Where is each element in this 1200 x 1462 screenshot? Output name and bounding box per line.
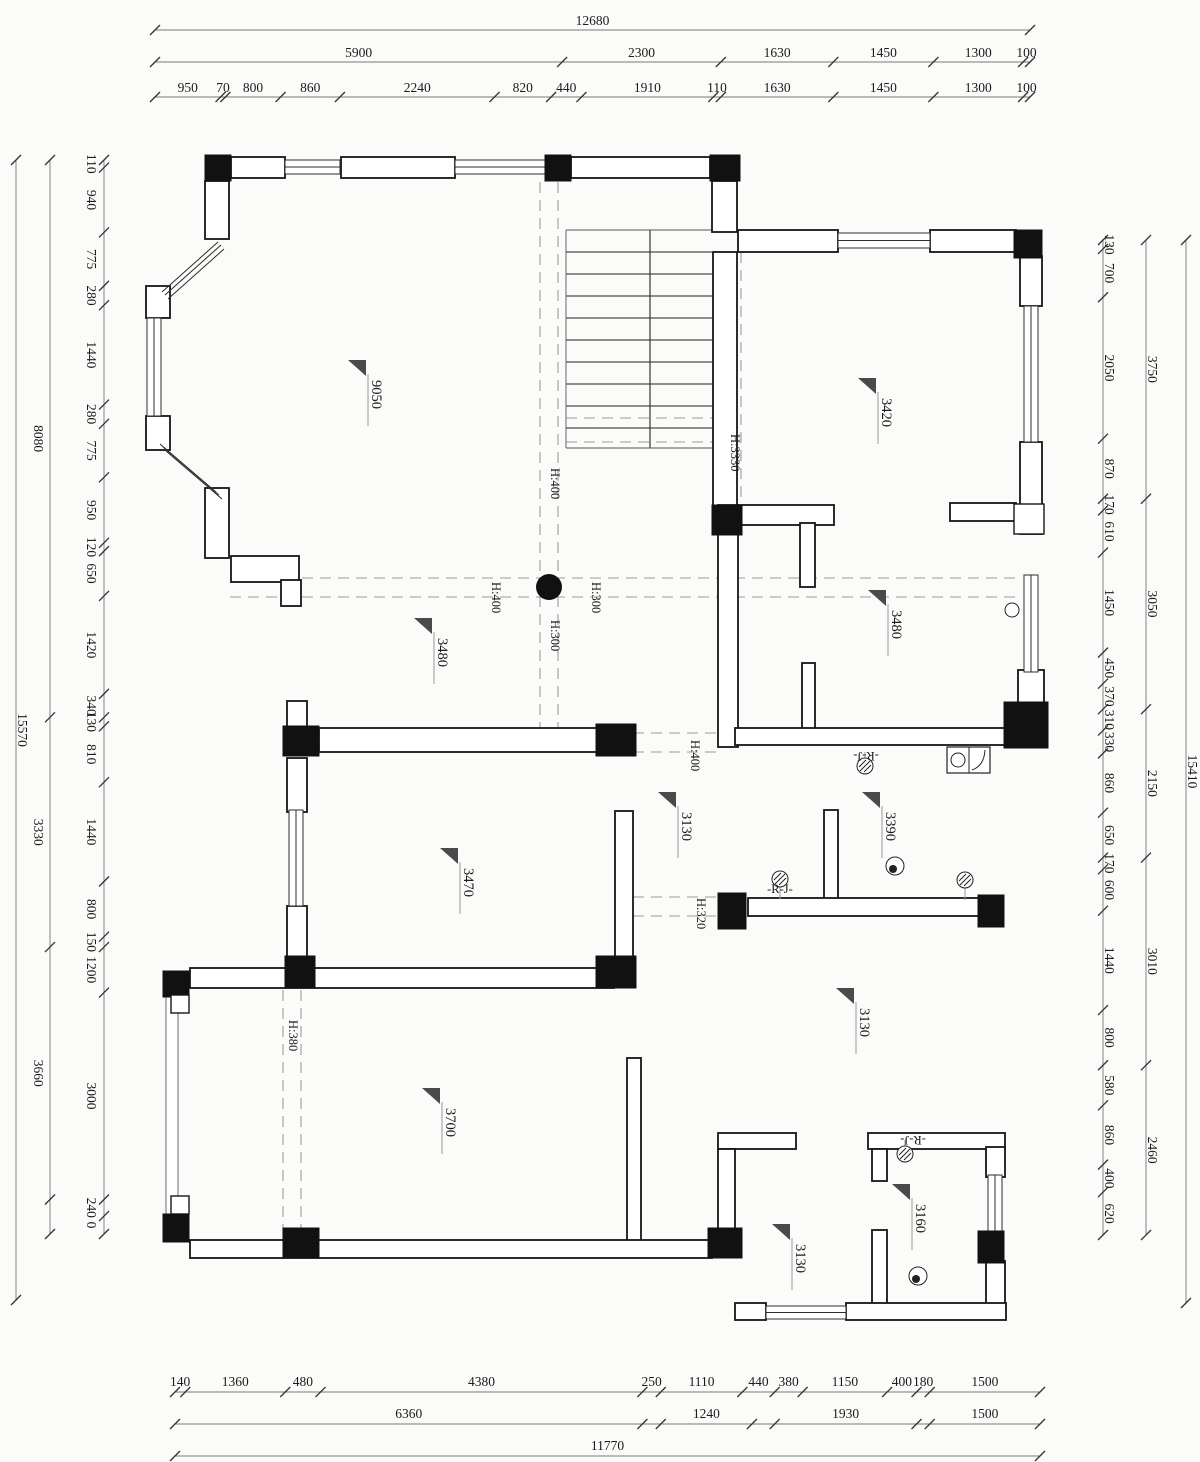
dim-label: 440 (556, 80, 577, 95)
wall-segment (190, 1240, 712, 1258)
dim-label: 1450 (870, 80, 897, 95)
wall-segment (1020, 256, 1042, 306)
dim-label: 170 (1102, 853, 1117, 874)
wall-segment (846, 1303, 1006, 1320)
wall-segment (190, 968, 614, 988)
floor-plan-canvas: 1268059002300163014501300100950708008602… (0, 0, 1200, 1462)
dim-strip-left-minor: 1109407752801440280775950120650142034013… (84, 154, 109, 1239)
dim-label: 820 (513, 80, 534, 95)
bay-window-pane (163, 447, 219, 495)
wall-segment (231, 556, 299, 582)
dim-label: 130 (84, 712, 99, 733)
dim-label: 860 (1102, 1125, 1117, 1146)
column (978, 895, 1004, 927)
dim-label: 480 (293, 1374, 314, 1389)
room-area-value: 3480 (888, 610, 904, 639)
dim-label: 940 (84, 190, 99, 211)
wall-segment (950, 503, 1016, 521)
dim-label: 860 (300, 80, 321, 95)
dim-strip-top-minor: 9507080086022408204401910110163014501300… (150, 80, 1037, 102)
wall-segment (231, 157, 285, 178)
door-knob-circle (1005, 603, 1019, 617)
wall-segment (627, 1058, 641, 1244)
column (1004, 702, 1048, 748)
room-area-value: 3470 (460, 868, 476, 897)
bay-window-pane (168, 249, 224, 299)
dim-label: 2240 (404, 80, 431, 95)
dim-label: 775 (84, 249, 99, 270)
room-area-label: 3480 (414, 618, 450, 684)
room-area-value: 9050 (368, 380, 384, 409)
wall-segment (615, 811, 633, 961)
dim-label: 110 (707, 80, 727, 95)
dim-label: 140 (170, 1374, 191, 1389)
wall-segment (1018, 670, 1044, 704)
dim-label: 600 (1102, 880, 1117, 901)
bay-window-pane (162, 242, 218, 292)
wall-segment (281, 580, 301, 606)
room-area-value: 3420 (878, 398, 894, 427)
height-annotation: H:320 (694, 898, 708, 929)
column (708, 1228, 742, 1258)
dim-strip-bottom-minor: 1401360480438025011104403801150400180150… (170, 1374, 1045, 1397)
label-triangle-flag (658, 792, 676, 808)
wall-segment (287, 906, 307, 960)
balcony-post (171, 1196, 189, 1214)
dim-label: 1200 (84, 956, 99, 983)
dim-label: 1450 (1102, 589, 1117, 616)
dim-label: 1440 (1102, 947, 1117, 974)
plumbing-fixtures (536, 574, 1019, 1285)
dim-label: 370 (1102, 686, 1117, 707)
dim-label: 950 (84, 500, 99, 521)
wall-segment (146, 286, 170, 318)
wall-segment (718, 1133, 796, 1149)
wall-segment (738, 230, 838, 252)
dim-label: 650 (1102, 825, 1117, 846)
room-area-value: 3130 (792, 1244, 808, 1273)
dim-label: 1500 (971, 1406, 998, 1421)
dim-label: 3330 (31, 819, 46, 846)
dim-label: 1450 (870, 45, 897, 60)
label-triangle-flag (414, 618, 432, 634)
riser-pipe-label: -R-J- (900, 1133, 926, 1147)
dim-label: 1240 (693, 1406, 720, 1421)
room-area-label: 9050 (348, 360, 384, 426)
dim-label: 12680 (576, 13, 610, 28)
column (163, 1214, 189, 1242)
label-triangle-flag (440, 848, 458, 864)
dim-label: 620 (1102, 1203, 1117, 1224)
dim-label: 70 (216, 80, 230, 95)
dim-label: 2460 (1145, 1137, 1160, 1164)
dim-label: 775 (84, 440, 99, 461)
dim-label: 1440 (84, 341, 99, 368)
label-triangle-flag (868, 590, 886, 606)
dim-label: 130 (1102, 234, 1117, 255)
wall-segment (930, 230, 1016, 252)
dim-label: 3750 (1145, 356, 1160, 383)
dim-strip-bottom-major: 6360124019301500 (170, 1406, 1045, 1429)
dim-label: 180 (913, 1374, 934, 1389)
dim-label: 800 (84, 899, 99, 920)
column (718, 893, 746, 929)
dim-label: 3000 (84, 1083, 99, 1110)
dim-label: 800 (1102, 1028, 1117, 1049)
dim-label: 1150 (832, 1374, 859, 1389)
dim-label: 15410 (1185, 755, 1200, 789)
room-area-value: 3130 (856, 1008, 872, 1037)
label-triangle-flag (892, 1184, 910, 1200)
column (596, 724, 636, 756)
dim-label: 310 (1102, 710, 1117, 731)
wall-segment (341, 157, 455, 178)
height-annotation: H:400 (489, 582, 503, 613)
wall-segment (718, 505, 738, 747)
dim-label: 800 (243, 80, 264, 95)
dim-label: 4380 (468, 1374, 495, 1389)
column (205, 155, 231, 181)
dim-label: 110 (84, 154, 99, 174)
wall-segment (802, 663, 815, 730)
wall-segment (205, 181, 229, 239)
dim-label: 3050 (1145, 590, 1160, 617)
dim-label: 3660 (31, 1060, 46, 1087)
dim-strip-top-total: 12680 (150, 13, 1035, 35)
wall-segment (824, 810, 838, 900)
wall-segment (872, 1230, 887, 1307)
dim-label: 100 (1016, 45, 1037, 60)
column (163, 971, 189, 997)
dim-label: 11770 (591, 1438, 624, 1453)
dim-label: 1300 (965, 45, 992, 60)
room-area-label: 3470 (440, 848, 476, 914)
room-area-label: 3160 (892, 1184, 928, 1250)
dim-label: 100 (1016, 80, 1037, 95)
column (285, 956, 315, 988)
wall-segment (571, 157, 710, 178)
dim-label: 1500 (971, 1374, 998, 1389)
label-triangle-flag (858, 378, 876, 394)
dim-label: 650 (84, 563, 99, 584)
dim-label: 1300 (965, 80, 992, 95)
wall-segment (986, 1261, 1005, 1307)
dim-label: 1440 (84, 818, 99, 845)
dim-strip-right-minor: 1307002050870170610145045037031033086065… (1098, 234, 1117, 1240)
wall-segment (872, 1149, 887, 1181)
dim-strip-left-major: 808033303660 (31, 155, 55, 1239)
room-area-label: 3130 (836, 988, 872, 1054)
dim-label: 1630 (764, 80, 791, 95)
height-annotation: H:400 (548, 468, 562, 499)
dim-label: 380 (779, 1374, 800, 1389)
dim-label: 240 (84, 1198, 99, 1219)
dim-label: 1420 (84, 631, 99, 658)
column (596, 956, 636, 988)
height-annotation: H:300 (589, 582, 603, 613)
height-annotation: H:380 (286, 1020, 300, 1051)
label-triangle-flag (862, 792, 880, 808)
dim-label: 870 (1102, 459, 1117, 480)
dim-strip-right-total: 15410 (1181, 235, 1200, 1308)
height-annotation: H:400 (688, 740, 702, 771)
dim-label: 580 (1102, 1075, 1117, 1096)
floor-plan-drawing: 1268059002300163014501300100950708008602… (0, 0, 1200, 1462)
dim-label: 5900 (345, 45, 372, 60)
dim-strip-bottom-total: 11770 (170, 1438, 1045, 1461)
room-area-value: 3480 (434, 638, 450, 667)
balcony-post (171, 995, 189, 1013)
dim-label: 2150 (1145, 770, 1160, 797)
room-area-label: 3130 (772, 1224, 808, 1290)
dim-label: 15570 (15, 713, 30, 747)
wall-segment (287, 758, 307, 812)
riser-pipe-label: -R-J- (853, 749, 879, 763)
toilet-symbol-shadow (889, 865, 897, 873)
wall-segment (205, 488, 229, 558)
column (283, 1228, 319, 1258)
dim-label: 2300 (628, 45, 655, 60)
column (712, 505, 742, 535)
dim-label: 700 (1102, 263, 1117, 284)
dim-label: 440 (748, 1374, 769, 1389)
wall-segment (319, 728, 598, 752)
room-area-label: 3420 (858, 378, 894, 444)
column (710, 155, 740, 181)
dim-label: 120 (84, 537, 99, 558)
wall-segment (146, 416, 170, 450)
column (283, 726, 319, 756)
wall-segment (868, 1133, 1005, 1149)
wall-segment (718, 1149, 735, 1233)
bay-window-pane (166, 451, 222, 499)
room-area-value: 3160 (912, 1204, 928, 1233)
column (1014, 230, 1042, 258)
dim-label: 250 (641, 1374, 662, 1389)
sink-basin (951, 753, 965, 767)
dim-label: 6360 (395, 1406, 422, 1421)
riser-pipe-label: -R-J- (767, 882, 793, 896)
dim-strip-top-major: 59002300163014501300100 (150, 45, 1037, 67)
dim-label: 8080 (31, 425, 46, 452)
wall-segment (748, 898, 980, 916)
dim-label: 170 (1102, 494, 1117, 515)
height-annotation: H:3330 (728, 434, 742, 472)
dim-label: 950 (178, 80, 199, 95)
dim-label: 280 (84, 285, 99, 306)
dim-label: 1360 (222, 1374, 249, 1389)
dim-label: 280 (84, 404, 99, 425)
column-point-marker (536, 574, 562, 600)
wall-segment (738, 505, 834, 525)
room-area-value: 3130 (678, 812, 694, 841)
room-area-label: 3700 (422, 1088, 458, 1154)
label-triangle-flag (836, 988, 854, 1004)
wall-pier (1014, 504, 1044, 534)
dim-label: 860 (1102, 773, 1117, 794)
staircase (566, 230, 734, 448)
dim-strip-right-major: 37503050215030102460 (1141, 235, 1160, 1240)
dim-label: 1110 (689, 1374, 715, 1389)
room-area-value: 3390 (882, 812, 898, 841)
column (545, 155, 571, 181)
dim-label: 3010 (1145, 948, 1160, 975)
column (978, 1231, 1004, 1263)
dim-label: 450 (1102, 658, 1117, 679)
room-area-label: 3390 (862, 792, 898, 858)
room-area-label: 3480 (868, 590, 904, 656)
dim-label: 1910 (634, 80, 661, 95)
dim-strip-left-total: 15570 (11, 155, 30, 1305)
label-triangle-flag (348, 360, 366, 376)
room-area-value: 3700 (442, 1108, 458, 1137)
dim-label: 400 (1102, 1168, 1117, 1189)
dim-label: 330 (1102, 732, 1117, 753)
wall-segment (986, 1147, 1005, 1177)
dim-label: 2050 (1102, 354, 1117, 381)
balcony-parapet (166, 997, 178, 1216)
height-annotation: H:300 (548, 620, 562, 651)
room-area-label: 3130 (658, 792, 694, 858)
wall-segment (735, 728, 1007, 745)
dim-label: 0 (84, 1222, 99, 1229)
toilet-symbol-shadow (912, 1275, 920, 1283)
bay-window-pane (165, 245, 221, 295)
dim-label: 1930 (832, 1406, 859, 1421)
wall-segment (800, 523, 815, 587)
wall-segment (712, 181, 737, 232)
label-triangle-flag (772, 1224, 790, 1240)
dim-label: 610 (1102, 521, 1117, 542)
dim-label: 400 (892, 1374, 913, 1389)
wall-segment (735, 1303, 766, 1320)
dim-label: 150 (84, 932, 99, 953)
label-triangle-flag (422, 1088, 440, 1104)
dim-label: 810 (84, 744, 99, 765)
wall-segment (287, 701, 307, 728)
dim-label: 1630 (764, 45, 791, 60)
